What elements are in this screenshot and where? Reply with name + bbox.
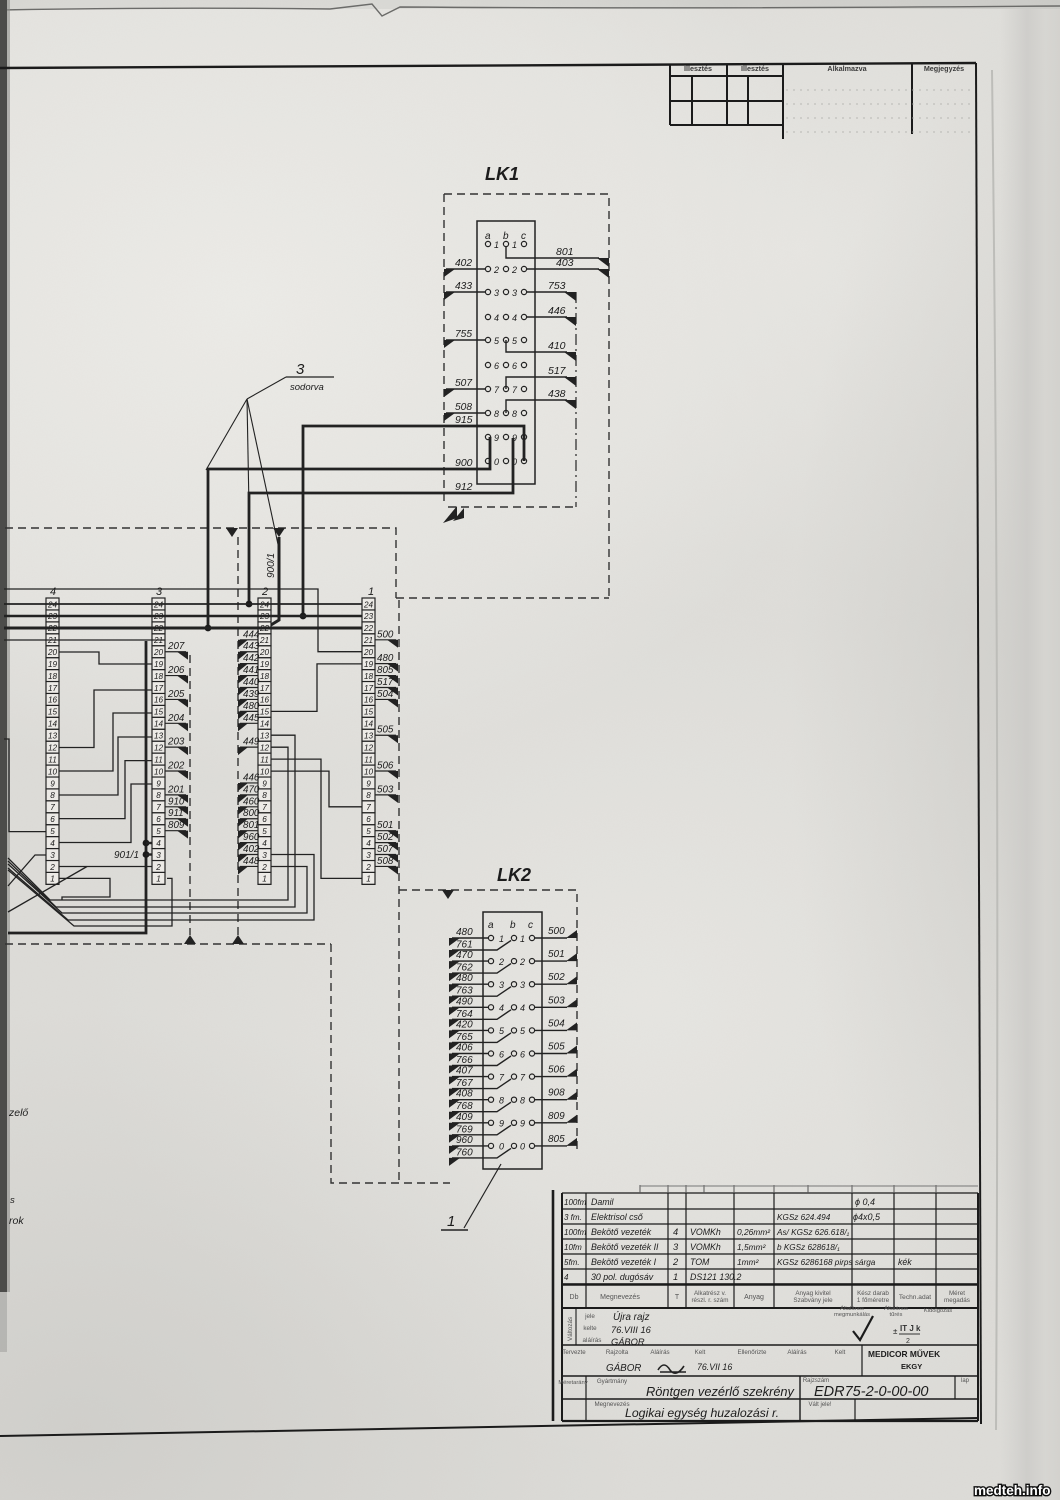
svg-text:18: 18	[154, 672, 164, 681]
svg-text:10: 10	[154, 767, 164, 776]
svg-text:Vált jele!: Vált jele!	[808, 1402, 831, 1408]
svg-text:kék: kék	[898, 1257, 912, 1267]
svg-text:1: 1	[156, 875, 161, 884]
svg-text:7: 7	[366, 803, 371, 812]
svg-text:b: b	[503, 231, 509, 242]
svg-text:100fm: 100fm	[564, 1228, 587, 1237]
svg-text:Bekötő vezeték: Bekötő vezeték	[591, 1227, 652, 1237]
svg-text:19: 19	[364, 660, 374, 669]
svg-text:1: 1	[447, 1213, 455, 1230]
svg-text:4: 4	[366, 839, 371, 848]
svg-text:1: 1	[366, 875, 371, 884]
svg-text:Kidolgozás: Kidolgozás	[924, 1308, 952, 1314]
svg-text:18: 18	[260, 672, 270, 681]
svg-text:6: 6	[262, 815, 267, 824]
svg-text:12: 12	[48, 743, 58, 752]
svg-text:12: 12	[364, 743, 374, 752]
svg-text:9: 9	[520, 1119, 525, 1129]
svg-text:1: 1	[673, 1272, 678, 1282]
svg-text:503: 503	[548, 995, 565, 1006]
svg-text:3: 3	[262, 851, 267, 860]
svg-text:1: 1	[262, 875, 267, 884]
svg-text:12: 12	[154, 743, 164, 752]
svg-text:20: 20	[363, 648, 374, 657]
svg-text:470: 470	[243, 784, 260, 795]
svg-text:17: 17	[364, 684, 374, 693]
svg-text:19: 19	[260, 660, 270, 669]
svg-text:508: 508	[455, 402, 472, 413]
svg-text:766: 766	[456, 1055, 473, 1066]
svg-text:zelő: zelő	[8, 1107, 28, 1119]
svg-text:764: 764	[456, 1009, 473, 1020]
svg-text:VOMKh: VOMKh	[690, 1227, 721, 1237]
svg-text:3: 3	[156, 586, 163, 598]
svg-text:3: 3	[512, 288, 517, 298]
svg-text:20: 20	[259, 648, 270, 657]
svg-text:Techn.adat: Techn.adat	[899, 1294, 931, 1301]
svg-text:910: 910	[168, 796, 185, 807]
svg-text:2: 2	[261, 863, 267, 872]
svg-text:911: 911	[168, 808, 184, 819]
svg-text:13: 13	[154, 732, 164, 741]
svg-text:76.VIII 16: 76.VIII 16	[611, 1325, 652, 1335]
svg-text:a: a	[485, 231, 491, 242]
svg-text:205: 205	[167, 689, 185, 700]
svg-text:6: 6	[156, 815, 161, 824]
svg-text:11: 11	[364, 755, 373, 764]
svg-text:10: 10	[260, 767, 270, 776]
svg-text:9: 9	[262, 779, 267, 788]
svg-text:ϕ 0,4: ϕ 0,4	[855, 1197, 875, 1207]
svg-text:769: 769	[456, 1124, 473, 1135]
svg-text:Újra rajz: Újra rajz	[613, 1312, 650, 1323]
svg-text:1: 1	[494, 240, 499, 250]
svg-text:15: 15	[260, 708, 270, 717]
svg-text:MEDICOR MŰVEK: MEDICOR MŰVEK	[868, 1348, 940, 1359]
svg-text:4: 4	[262, 839, 267, 848]
svg-text:1: 1	[499, 934, 504, 944]
svg-text:LK1: LK1	[485, 164, 519, 184]
svg-text:Megnevezés: Megnevezés	[600, 1294, 640, 1301]
svg-text:800: 800	[243, 808, 260, 819]
svg-text:4: 4	[50, 586, 56, 598]
svg-text:Szabvány jele: Szabvány jele	[793, 1297, 833, 1304]
svg-text:507: 507	[377, 844, 394, 855]
svg-text:Tervezte: Tervezte	[562, 1349, 586, 1356]
svg-text:6: 6	[50, 815, 55, 824]
svg-text:809: 809	[168, 820, 185, 831]
svg-text:503: 503	[377, 784, 394, 795]
svg-text:Illesztés: Illesztés	[741, 64, 769, 73]
svg-text:Aláírás: Aláírás	[650, 1349, 669, 1356]
svg-text:4: 4	[564, 1273, 569, 1282]
svg-text:4: 4	[499, 1003, 504, 1013]
svg-text:4: 4	[673, 1227, 678, 1237]
svg-text:11: 11	[154, 755, 163, 764]
svg-text:203: 203	[167, 737, 185, 748]
svg-text:6: 6	[499, 1049, 504, 1059]
svg-text:912: 912	[455, 481, 473, 493]
svg-text:1,5mm²: 1,5mm²	[737, 1242, 767, 1252]
svg-text:Változás: Változás	[567, 1317, 574, 1341]
svg-text:915: 915	[455, 414, 473, 426]
svg-text:0,26mm²: 0,26mm²	[737, 1227, 771, 1237]
svg-text:8: 8	[512, 409, 517, 419]
svg-text:16: 16	[260, 696, 270, 705]
svg-text:Logikai egység huzalozási r.: Logikai egység huzalozási r.	[625, 1406, 779, 1420]
svg-text:Anyag: Anyag	[744, 1294, 764, 1301]
svg-text:805: 805	[377, 665, 394, 676]
svg-text:jele: jele	[584, 1313, 595, 1320]
svg-text:7: 7	[262, 803, 267, 812]
svg-text:7: 7	[156, 803, 161, 812]
svg-text:11: 11	[260, 755, 269, 764]
svg-text:23: 23	[363, 612, 374, 621]
svg-text:100fm: 100fm	[564, 1198, 587, 1207]
svg-text:4: 4	[50, 839, 55, 848]
svg-text:805: 805	[548, 1134, 565, 1145]
svg-text:KGSz 624.494: KGSz 624.494	[777, 1213, 831, 1222]
svg-text:960: 960	[456, 1135, 473, 1146]
svg-text:517: 517	[548, 365, 567, 377]
svg-text:409: 409	[456, 1112, 473, 1123]
svg-text:1: 1	[520, 934, 525, 944]
svg-text:407: 407	[456, 1066, 473, 1077]
svg-text:11: 11	[48, 755, 57, 764]
svg-text:13: 13	[364, 732, 374, 741]
svg-text:1mm²: 1mm²	[737, 1257, 760, 1267]
svg-text:10: 10	[364, 767, 374, 776]
svg-text:Méretarány: Méretarány	[558, 1380, 587, 1386]
svg-text:Damil: Damil	[591, 1197, 615, 1207]
svg-text:2: 2	[493, 265, 499, 275]
svg-text:8: 8	[520, 1096, 525, 1106]
svg-text:5: 5	[50, 827, 55, 836]
svg-text:4: 4	[156, 839, 161, 848]
svg-text:3: 3	[673, 1242, 679, 1252]
svg-text:7: 7	[50, 803, 55, 812]
svg-text:402: 402	[243, 844, 260, 855]
svg-text:Ellenőrizte: Ellenőrizte	[738, 1349, 767, 1356]
svg-text:442: 442	[243, 653, 260, 664]
svg-text:T: T	[675, 1294, 680, 1301]
svg-text:lap: lap	[961, 1378, 970, 1384]
svg-text:504: 504	[377, 689, 394, 700]
svg-text:765: 765	[456, 1032, 473, 1043]
svg-text:16: 16	[48, 696, 58, 705]
svg-text:448: 448	[243, 856, 260, 867]
svg-text:505: 505	[548, 1042, 565, 1053]
svg-text:EKGY: EKGY	[901, 1362, 922, 1371]
svg-text:9: 9	[50, 779, 55, 788]
svg-text:5: 5	[366, 827, 371, 836]
svg-text:508: 508	[377, 856, 394, 867]
svg-text:1: 1	[368, 586, 374, 598]
svg-text:3: 3	[156, 851, 161, 860]
svg-text:19: 19	[48, 660, 58, 669]
svg-text:21: 21	[363, 636, 373, 645]
svg-text:aláírás: aláírás	[583, 1337, 602, 1344]
svg-text:760: 760	[456, 1147, 473, 1158]
svg-text:761: 761	[456, 940, 473, 951]
svg-text:6: 6	[366, 815, 371, 824]
svg-text:17: 17	[154, 684, 164, 693]
svg-text:9: 9	[494, 433, 499, 443]
svg-text:6: 6	[512, 361, 517, 371]
svg-text:900/1: 900/1	[266, 553, 277, 578]
svg-text:500: 500	[548, 926, 565, 937]
svg-text:502: 502	[377, 832, 394, 843]
svg-text:medteh.info: medteh.info	[974, 1483, 1051, 1498]
svg-text:446: 446	[548, 305, 566, 317]
svg-text:5: 5	[262, 827, 267, 836]
svg-text:Alkatrész v.: Alkatrész v.	[694, 1290, 726, 1297]
svg-text:2: 2	[365, 863, 371, 872]
svg-text:446: 446	[243, 772, 260, 783]
svg-text:76.VII 16: 76.VII 16	[697, 1362, 732, 1372]
svg-text:201: 201	[167, 784, 184, 795]
svg-text:14: 14	[260, 720, 270, 729]
svg-text:Illesztés: Illesztés	[684, 64, 712, 73]
svg-text:2: 2	[261, 586, 268, 598]
svg-text:24: 24	[363, 600, 374, 609]
svg-text:502: 502	[548, 972, 565, 983]
svg-text:1: 1	[50, 875, 55, 884]
svg-text:DS121 130.2: DS121 130.2	[690, 1272, 741, 1282]
svg-text:517: 517	[377, 677, 394, 688]
svg-text:504: 504	[548, 1018, 565, 1029]
svg-text:202: 202	[167, 761, 185, 772]
svg-text:Kész darab: Kész darab	[857, 1290, 889, 1297]
svg-text:755: 755	[455, 329, 472, 340]
svg-text:753: 753	[548, 280, 566, 292]
svg-text:s: s	[10, 1195, 15, 1206]
svg-text:908: 908	[548, 1088, 565, 1099]
svg-text:14: 14	[154, 720, 164, 729]
svg-text:Méret: Méret	[949, 1290, 965, 1297]
svg-text:VOMKh: VOMKh	[690, 1242, 721, 1252]
svg-text:Elektrisol cső: Elektrisol cső	[591, 1212, 643, 1222]
svg-text:763: 763	[456, 986, 473, 997]
svg-text:5fm.: 5fm.	[564, 1258, 580, 1267]
svg-text:b KGSz 628618/₁: b KGSz 628618/₁	[777, 1243, 840, 1252]
svg-text:9: 9	[156, 779, 161, 788]
svg-text:14: 14	[48, 720, 58, 729]
svg-text:20: 20	[47, 648, 58, 657]
svg-text:480: 480	[456, 927, 473, 938]
svg-text:1 főméretre: 1 főméretre	[857, 1297, 890, 1304]
svg-text:438: 438	[548, 388, 566, 400]
svg-text:Aláírás: Aláírás	[787, 1349, 806, 1356]
svg-text:13: 13	[48, 732, 58, 741]
svg-text:3: 3	[499, 980, 504, 990]
svg-text:2: 2	[155, 863, 161, 872]
svg-text:Általános: Általános	[884, 1305, 908, 1312]
svg-text:206: 206	[167, 665, 185, 676]
svg-text:444: 444	[243, 629, 260, 640]
svg-text:18: 18	[364, 672, 374, 681]
svg-text:12: 12	[260, 743, 270, 752]
svg-text:5: 5	[156, 827, 161, 836]
svg-text:Bekötő vezeték II: Bekötő vezeték II	[591, 1242, 659, 1252]
svg-text:506: 506	[548, 1065, 565, 1076]
svg-text:4: 4	[494, 313, 499, 323]
svg-text:ϕ4x0,5: ϕ4x0,5	[853, 1212, 881, 1222]
svg-text:207: 207	[167, 641, 185, 652]
svg-text:6: 6	[520, 1049, 525, 1059]
svg-text:762: 762	[456, 963, 473, 974]
svg-text:TOM: TOM	[690, 1257, 710, 1267]
svg-text:0: 0	[499, 1142, 504, 1152]
svg-text:402: 402	[455, 258, 472, 269]
svg-text:10: 10	[48, 767, 58, 776]
svg-text:441: 441	[243, 665, 259, 676]
svg-text:3: 3	[50, 851, 55, 860]
svg-text:3: 3	[520, 980, 525, 990]
svg-text:420: 420	[456, 1019, 473, 1030]
svg-text:Bekötő vezeték I: Bekötő vezeték I	[591, 1257, 657, 1267]
svg-text:21: 21	[259, 636, 269, 645]
svg-text:megmunkálás: megmunkálás	[834, 1312, 870, 1318]
svg-text:GÁBOR: GÁBOR	[606, 1363, 641, 1374]
svg-text:500: 500	[377, 629, 394, 640]
svg-text:IT J k: IT J k	[900, 1324, 921, 1333]
svg-text:440: 440	[243, 677, 260, 688]
svg-text:2: 2	[906, 1338, 910, 1345]
svg-text:480: 480	[456, 973, 473, 984]
svg-text:480: 480	[243, 701, 260, 712]
svg-text:20: 20	[153, 648, 164, 657]
svg-text:9: 9	[499, 1119, 504, 1129]
svg-text:2: 2	[49, 863, 55, 872]
svg-text:768: 768	[456, 1101, 473, 1112]
svg-text:2: 2	[519, 957, 525, 967]
svg-text:505: 505	[377, 725, 394, 736]
svg-text:megadás: megadás	[944, 1297, 970, 1304]
svg-text:As/ KGSz 626.618/₁: As/ KGSz 626.618/₁	[776, 1228, 850, 1237]
svg-text:1: 1	[512, 240, 517, 250]
svg-text:±: ±	[893, 1327, 898, 1336]
svg-text:501: 501	[548, 949, 565, 960]
svg-text:403: 403	[556, 257, 574, 269]
svg-text:4: 4	[520, 1003, 525, 1013]
svg-text:KGSz 6286168 pirps sárga: KGSz 6286168 pirps sárga	[777, 1258, 876, 1267]
svg-text:17: 17	[48, 684, 58, 693]
svg-text:3: 3	[296, 361, 305, 378]
svg-text:433: 433	[455, 281, 472, 292]
svg-text:801: 801	[243, 820, 259, 831]
svg-text:LK2: LK2	[497, 865, 531, 885]
svg-text:445: 445	[243, 713, 260, 724]
svg-text:a: a	[488, 920, 494, 931]
svg-text:Alkalmazva: Alkalmazva	[827, 64, 867, 73]
svg-text:8: 8	[156, 791, 161, 800]
svg-text:2: 2	[511, 265, 517, 275]
svg-text:3 fm.: 3 fm.	[564, 1213, 582, 1222]
svg-text:EDR75-2-0-00-00: EDR75-2-0-00-00	[814, 1384, 928, 1400]
svg-text:15: 15	[48, 708, 58, 717]
svg-text:22: 22	[363, 624, 374, 633]
svg-text:részl. r. szám: részl. r. szám	[691, 1297, 728, 1304]
svg-text:rok: rok	[9, 1215, 24, 1227]
svg-text:3: 3	[366, 851, 371, 860]
svg-text:Kelt: Kelt	[835, 1349, 846, 1356]
svg-text:Db: Db	[570, 1294, 579, 1301]
svg-text:Általános: Általános	[840, 1305, 864, 1312]
svg-text:16: 16	[364, 696, 374, 705]
svg-text:460: 460	[243, 796, 260, 807]
svg-text:4: 4	[512, 313, 517, 323]
svg-text:6: 6	[494, 361, 499, 371]
svg-text:0: 0	[520, 1142, 525, 1152]
svg-text:17: 17	[260, 684, 270, 693]
svg-text:8: 8	[366, 791, 371, 800]
svg-text:tűrés: tűrés	[890, 1312, 903, 1318]
svg-text:kelte: kelte	[583, 1325, 597, 1332]
svg-text:b: b	[510, 920, 516, 931]
svg-text:901/1: 901/1	[114, 850, 139, 861]
svg-text:9: 9	[366, 779, 371, 788]
svg-text:10fm: 10fm	[564, 1243, 582, 1252]
svg-text:406: 406	[456, 1043, 473, 1054]
svg-text:14: 14	[364, 720, 374, 729]
svg-text:501: 501	[377, 820, 393, 831]
svg-text:8: 8	[262, 791, 267, 800]
svg-text:449: 449	[243, 737, 260, 748]
svg-text:Gyártmány: Gyártmány	[597, 1378, 628, 1385]
svg-text:30 pol. dugósáv: 30 pol. dugósáv	[591, 1272, 654, 1282]
svg-text:408: 408	[456, 1089, 473, 1100]
svg-text:19: 19	[154, 660, 164, 669]
svg-text:c: c	[528, 920, 533, 931]
svg-text:Kelt: Kelt	[695, 1349, 706, 1356]
svg-text:13: 13	[260, 732, 270, 741]
svg-text:16: 16	[154, 696, 164, 705]
svg-text:410: 410	[548, 340, 566, 352]
svg-text:767: 767	[456, 1078, 473, 1089]
svg-text:960: 960	[243, 832, 260, 843]
svg-text:470: 470	[456, 950, 473, 961]
svg-text:Röntgen vezérlő szekrény: Röntgen vezérlő szekrény	[646, 1384, 796, 1399]
svg-text:c: c	[521, 231, 526, 242]
svg-text:809: 809	[548, 1111, 565, 1122]
svg-text:GÁBOR: GÁBOR	[611, 1337, 645, 1347]
svg-text:Megjegyzés: Megjegyzés	[924, 64, 964, 73]
svg-text:8: 8	[494, 409, 499, 419]
svg-text:480: 480	[377, 653, 394, 664]
svg-text:0: 0	[494, 457, 499, 467]
svg-text:2: 2	[672, 1257, 679, 1267]
svg-text:507: 507	[455, 378, 472, 389]
svg-text:3: 3	[494, 288, 499, 298]
svg-text:15: 15	[154, 708, 164, 717]
svg-text:18: 18	[48, 672, 58, 681]
svg-text:506: 506	[377, 761, 394, 772]
svg-text:8: 8	[50, 791, 55, 800]
svg-text:Rajzolta: Rajzolta	[606, 1349, 629, 1356]
svg-text:8: 8	[499, 1096, 504, 1106]
svg-text:439: 439	[243, 689, 260, 700]
svg-text:sodorva: sodorva	[290, 382, 324, 393]
svg-text:204: 204	[167, 713, 185, 724]
svg-text:Anyag kivitel: Anyag kivitel	[795, 1290, 830, 1297]
svg-text:443: 443	[243, 641, 260, 652]
svg-text:15: 15	[364, 708, 374, 717]
svg-text:2: 2	[498, 957, 504, 967]
svg-text:490: 490	[456, 996, 473, 1007]
svg-text:900: 900	[455, 457, 473, 469]
